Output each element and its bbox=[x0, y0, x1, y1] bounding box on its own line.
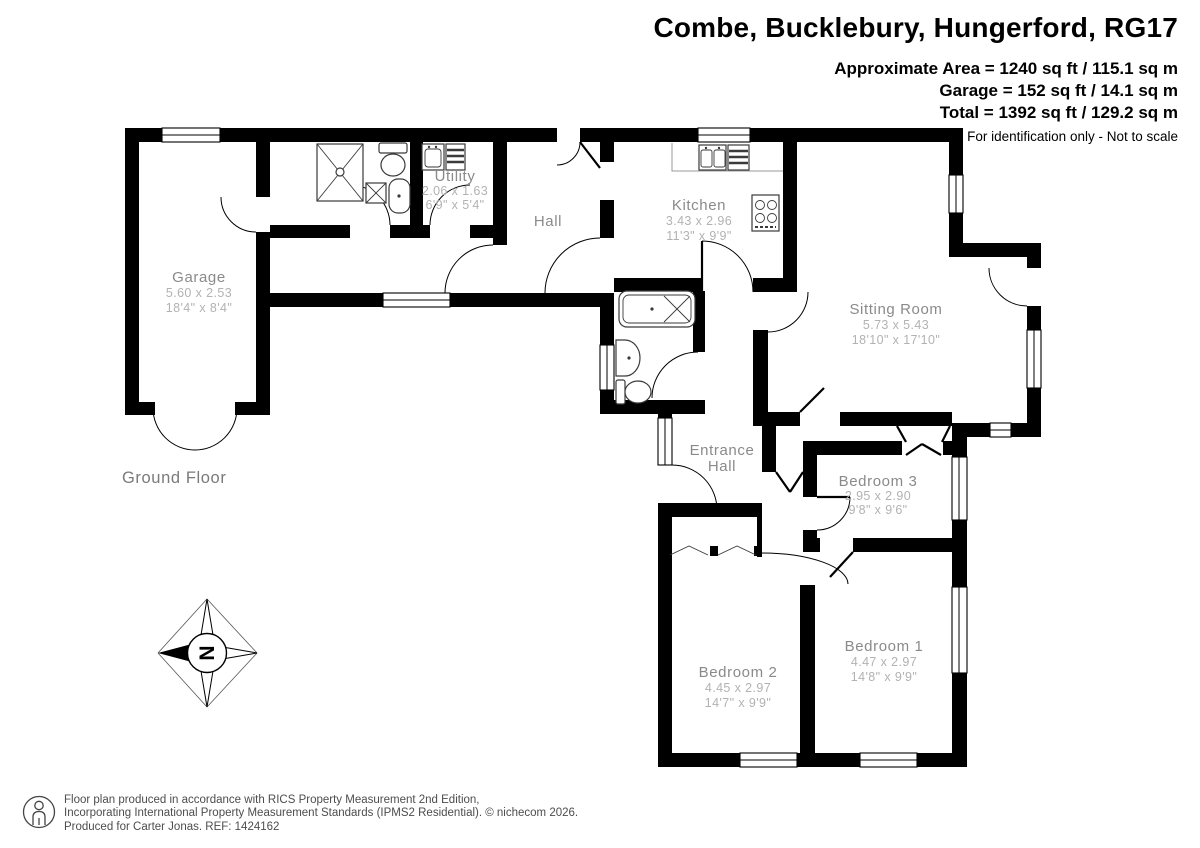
room-dim-sitting-ft: 18'10" x 17'10" bbox=[852, 333, 940, 347]
room-label-hall: Hall bbox=[534, 213, 562, 230]
room-dim-bedroom3-m: 2.95 x 2.90 bbox=[845, 489, 911, 503]
room-dim-bedroom3-ft: 9'8" x 9'6" bbox=[848, 503, 907, 517]
window-bedroom1-east bbox=[952, 587, 967, 673]
sitting-lobby-door-leaf bbox=[800, 388, 824, 412]
total-area: Total = 1392 sq ft / 129.2 sq m bbox=[653, 102, 1178, 124]
room-dim-utility-m: 2.06 x 1.63 bbox=[422, 184, 488, 198]
window-sitting-east bbox=[1027, 330, 1041, 388]
window-garage-north bbox=[162, 128, 220, 142]
hall-north-door bbox=[557, 142, 600, 168]
footer-line-1: Floor plan produced in accordance with R… bbox=[64, 794, 578, 808]
toilet-icon-shower-room bbox=[379, 143, 407, 176]
header: Combe, Bucklebury, Hungerford, RG17 Appr… bbox=[653, 12, 1178, 144]
room-dim-garage-ft: 18'4" x 8'4" bbox=[166, 301, 232, 315]
room-label-kitchen: Kitchen bbox=[672, 197, 726, 214]
kitchen-sink-icon bbox=[699, 145, 726, 170]
room-label-entrance-hall-1: Entrance bbox=[690, 442, 755, 459]
sink-icon-shower-room bbox=[366, 183, 386, 203]
hob-icon bbox=[752, 195, 779, 231]
bedroom2-door bbox=[762, 553, 848, 584]
footer-line-3: Produced for Carter Jonas. REF: 1424162 bbox=[64, 821, 578, 835]
room-label-garage: Garage bbox=[172, 269, 226, 286]
room-label-bedroom3: Bedroom 3 bbox=[839, 473, 918, 490]
room-dim-kitchen-m: 3.43 x 2.96 bbox=[666, 214, 732, 228]
window-bay-south bbox=[990, 423, 1011, 437]
room-dim-bedroom1-ft: 14'8" x 9'9" bbox=[851, 670, 917, 684]
window-bedroom2-south bbox=[740, 753, 797, 767]
room-label-utility: Utility bbox=[435, 168, 476, 185]
dishwasher-icon-kitchen bbox=[728, 145, 749, 170]
identification-note: For identification only - Not to scale bbox=[653, 129, 1178, 144]
room-labels: Garage 5.60 x 2.53 18'4" x 8'4" Utility … bbox=[166, 168, 943, 710]
room-label-bedroom2: Bedroom 2 bbox=[699, 664, 778, 681]
garage-side-door bbox=[221, 197, 256, 232]
room-label-entrance-hall-2: Hall bbox=[708, 458, 736, 475]
utility-sink-icon bbox=[422, 144, 444, 170]
compass-letter: N bbox=[196, 645, 219, 660]
washer-icon-utility bbox=[446, 144, 465, 170]
room-label-bedroom1: Bedroom 1 bbox=[845, 638, 924, 655]
room-dim-garage-m: 5.60 x 2.53 bbox=[166, 286, 232, 300]
sitting-west-door bbox=[768, 292, 808, 332]
basin-icon-bathroom bbox=[616, 340, 640, 376]
compass-rose: N bbox=[158, 599, 257, 707]
garage-area: Garage = 152 sq ft / 14.1 sq m bbox=[653, 80, 1178, 102]
toilet-icon-bathroom bbox=[616, 380, 651, 404]
footer: Floor plan produced in accordance with R… bbox=[22, 794, 578, 835]
page-title: Combe, Bucklebury, Hungerford, RG17 bbox=[653, 12, 1178, 44]
hall-east-door bbox=[545, 238, 600, 293]
footer-line-2: Incorporating International Property Mea… bbox=[64, 807, 578, 821]
room-dim-bedroom1-m: 4.47 x 2.97 bbox=[851, 655, 917, 669]
window-bedroom3-east bbox=[952, 457, 967, 520]
floorplan-page: Garage 5.60 x 2.53 18'4" x 8'4" Utility … bbox=[0, 0, 1200, 848]
airing-cupboard-doors bbox=[776, 472, 803, 492]
basin-icon-shower-room bbox=[389, 179, 410, 213]
corridor-hall-door bbox=[445, 245, 493, 293]
bathroom-door bbox=[652, 352, 698, 398]
bedroom1-door-leaf bbox=[830, 552, 853, 577]
room-dim-utility-ft: 6'9" x 5'4" bbox=[425, 198, 484, 212]
room-label-sitting-room: Sitting Room bbox=[849, 301, 942, 318]
sitting-patio-door bbox=[989, 268, 1027, 306]
room-dim-bedroom2-ft: 14'7" x 9'9" bbox=[705, 696, 771, 710]
room-dim-kitchen-ft: 11'3" x 9'9" bbox=[666, 229, 731, 243]
kitchen-door bbox=[702, 241, 753, 292]
fixtures bbox=[317, 143, 783, 404]
person-icon bbox=[22, 794, 56, 830]
bath-icon bbox=[619, 291, 695, 327]
window-sitting-northeast bbox=[949, 175, 963, 213]
shower-icon bbox=[317, 144, 363, 201]
garage-double-door bbox=[153, 408, 237, 450]
floor-label: Ground Floor bbox=[122, 469, 226, 487]
window-entrance-hall-west bbox=[658, 418, 672, 465]
footer-text: Floor plan produced in accordance with R… bbox=[64, 794, 578, 835]
window-bathroom-west bbox=[600, 345, 614, 390]
window-bedroom1-south bbox=[860, 753, 917, 767]
doors bbox=[153, 142, 1027, 584]
approximate-area: Approximate Area = 1240 sq ft / 115.1 sq… bbox=[653, 58, 1178, 80]
bedroom3-bay-french-doors bbox=[906, 444, 941, 455]
room-dim-sitting-m: 5.73 x 5.43 bbox=[863, 318, 929, 332]
window-wing-south bbox=[383, 293, 450, 307]
room-dim-bedroom2-m: 4.45 x 2.97 bbox=[705, 681, 771, 695]
